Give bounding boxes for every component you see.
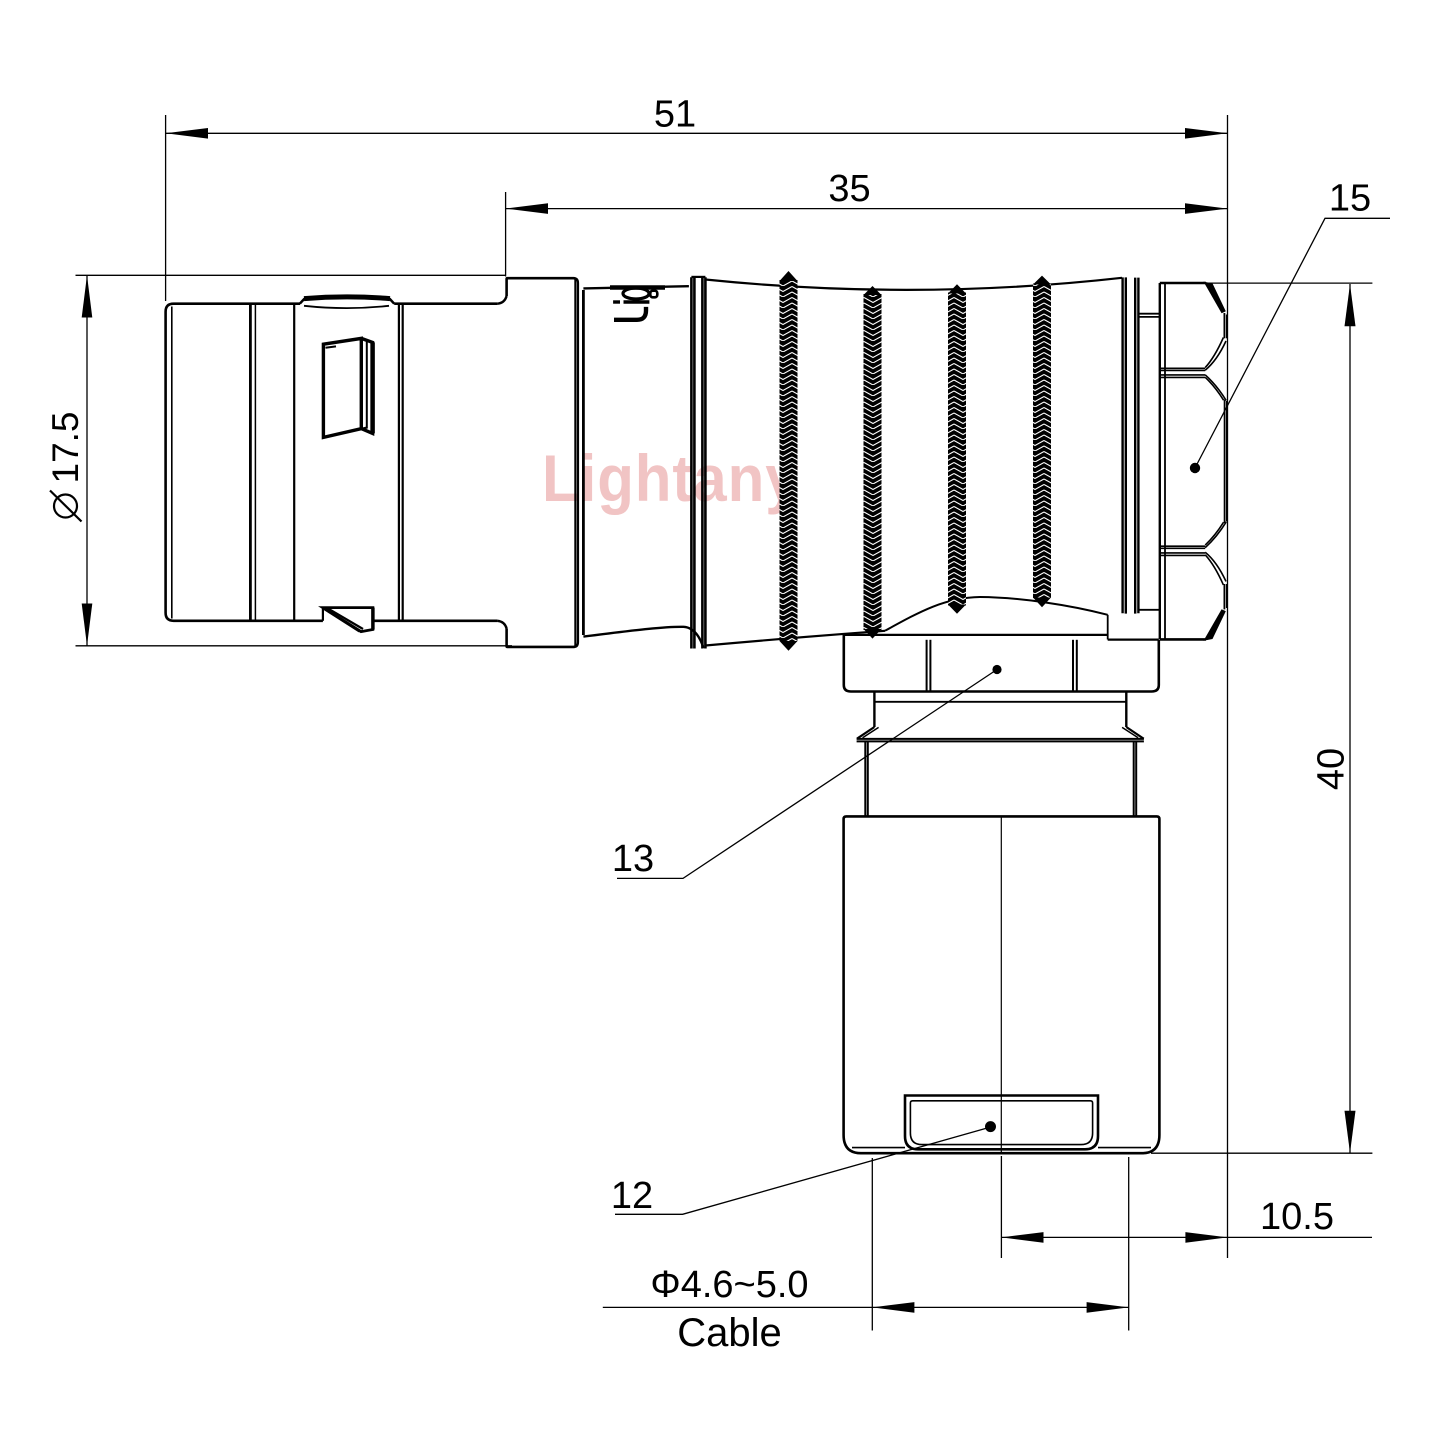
svg-text:13: 13: [612, 838, 654, 880]
svg-text:35: 35: [828, 168, 870, 210]
svg-text:Φ4.6~5.0: Φ4.6~5.0: [650, 1264, 808, 1306]
svg-text:12: 12: [611, 1175, 653, 1217]
svg-text:40: 40: [1311, 748, 1353, 790]
svg-text:51: 51: [654, 94, 696, 136]
svg-text:10.5: 10.5: [1260, 1196, 1334, 1238]
svg-text:15: 15: [1329, 178, 1371, 220]
svg-text:17.5: 17.5: [45, 411, 86, 483]
svg-text:Cable: Cable: [677, 1311, 782, 1355]
